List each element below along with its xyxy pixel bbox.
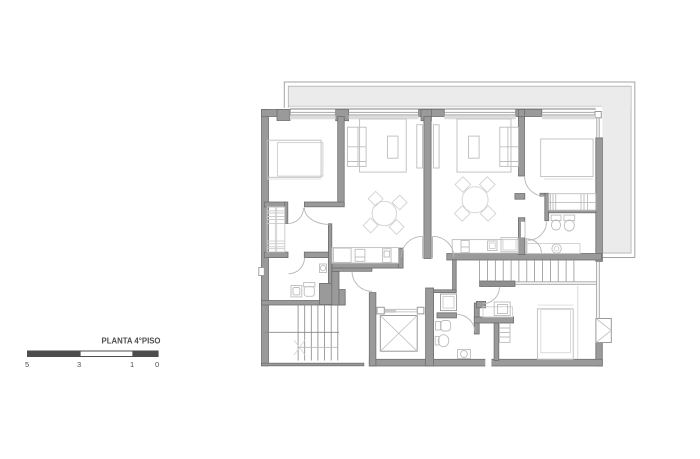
svg-text:1: 1 bbox=[130, 360, 134, 369]
svg-text:5: 5 bbox=[25, 360, 29, 369]
svg-text:PLANTA 4°PISO: PLANTA 4°PISO bbox=[102, 336, 161, 345]
svg-text:0: 0 bbox=[155, 360, 159, 369]
svg-text:3: 3 bbox=[77, 360, 81, 369]
